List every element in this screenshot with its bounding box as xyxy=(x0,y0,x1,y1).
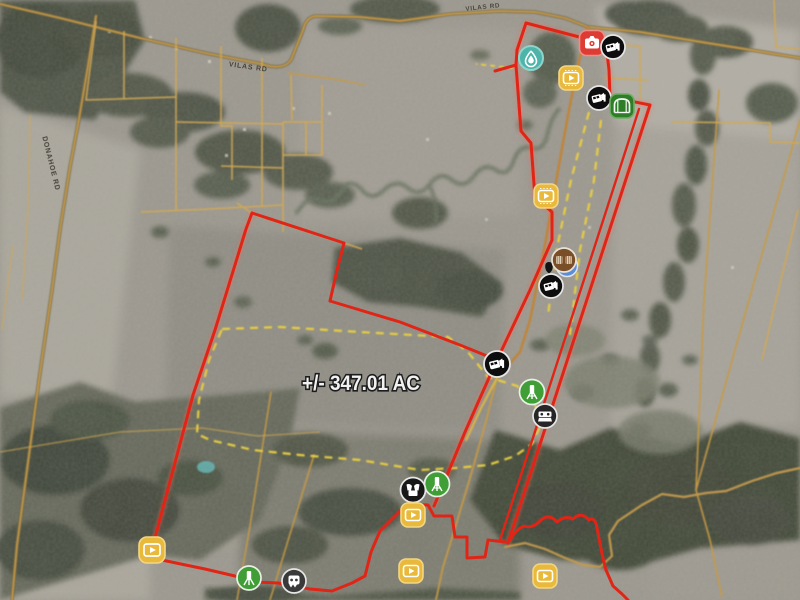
svg-text:+/- 347.01 AC: +/- 347.01 AC xyxy=(302,371,420,395)
